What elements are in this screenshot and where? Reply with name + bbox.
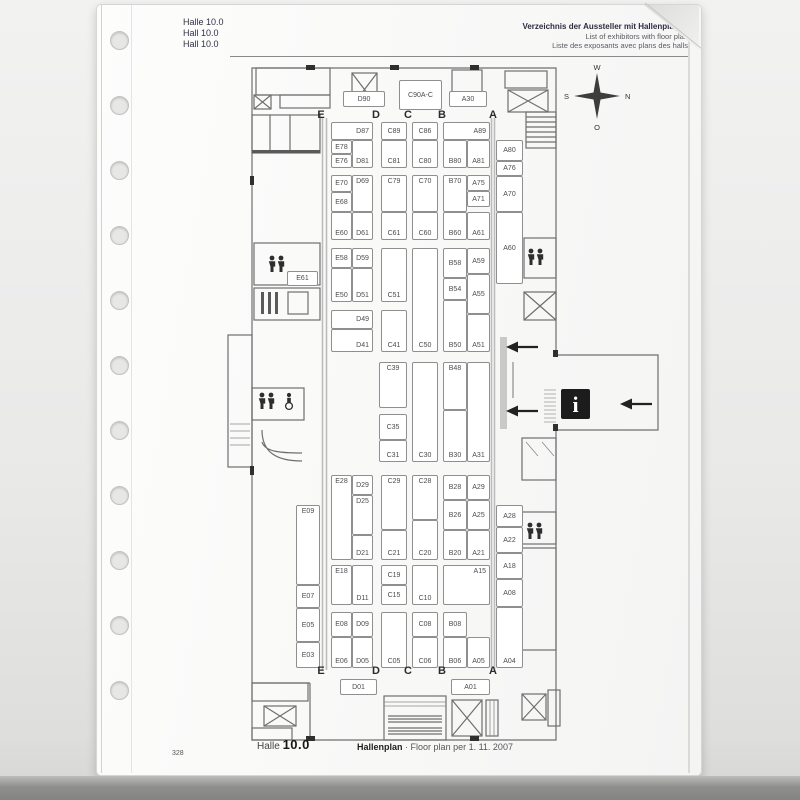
booth-E07: E07: [296, 585, 320, 608]
booth-B20: B20: [443, 530, 467, 560]
booth-C90A-C: C90A-C: [399, 80, 442, 110]
column-letter-C-top: C: [404, 109, 412, 121]
booth-D51: D51: [352, 268, 373, 302]
booth-C79: C79: [381, 175, 407, 212]
photographed-catalog-page: Halle 10.0 Hall 10.0 Hall 10.0 Verzeichn…: [0, 0, 800, 800]
booth-B48: B48: [443, 362, 467, 410]
footer-plan-caption: Hallenplan · Floor plan per 1. 11. 2007: [357, 742, 513, 752]
booth-C31: C31: [379, 440, 407, 462]
booth-C81: C81: [381, 140, 407, 168]
booth-E78: E78: [331, 140, 352, 154]
booth-C80: C80: [412, 140, 438, 168]
footer-hall-word: Halle: [257, 741, 280, 752]
booth-E06: E06: [331, 637, 352, 668]
booth-A29: A29: [467, 475, 490, 500]
column-letter-A-top: A: [489, 109, 497, 121]
booth-A59: A59: [467, 248, 490, 274]
booth-D25: D25: [352, 495, 373, 535]
booth-D90: D90: [343, 91, 385, 107]
booth-B50: B50: [443, 300, 467, 352]
booth-C89: C89: [381, 122, 407, 140]
booth-B26: B26: [443, 500, 467, 530]
booth-A81: A81: [467, 140, 490, 168]
booth-C35: C35: [379, 414, 407, 440]
booth-A61: A61: [467, 212, 490, 240]
booth-C19: C19: [381, 565, 407, 585]
booth-C51: C51: [381, 248, 407, 302]
booth-D41: D41: [331, 329, 373, 352]
booth-E76: E76: [331, 154, 352, 168]
booth-A80: A80: [496, 140, 523, 161]
booth-C10: C10: [412, 565, 438, 605]
booth-D01: D01: [340, 679, 377, 695]
booth-C60: C60: [412, 212, 438, 240]
booth-D11: D11: [352, 565, 373, 605]
booth-C15: C15: [381, 585, 407, 605]
booth-layer: D90C90A-CA30D87E78E76D81C89C81C86C80A89B…: [0, 0, 800, 800]
booth-C28: C28: [412, 475, 438, 520]
booth-B80: B80: [443, 140, 467, 168]
booth-E08: E08: [331, 612, 352, 637]
booth-E58: E58: [331, 248, 352, 268]
page-number: 328: [172, 750, 184, 757]
booth-D61: D61: [352, 212, 373, 240]
booth-D69: D69: [352, 175, 373, 212]
booth-B60: B60: [443, 212, 467, 240]
footer-hall-title: Halle 10.0: [257, 737, 310, 752]
booth-C50: C50: [412, 248, 438, 352]
booth-A55: A55: [467, 274, 490, 314]
booth-C41: C41: [381, 310, 407, 352]
booth-A25: A25: [467, 500, 490, 530]
booth-C20: C20: [412, 520, 438, 560]
booth-E61: E61: [287, 271, 318, 286]
table-edge: [0, 776, 800, 800]
booth-E60: E60: [331, 212, 352, 240]
booth-C05: C05: [381, 612, 407, 668]
booth-A15: A15: [443, 565, 490, 605]
booth-E09: E09: [296, 505, 320, 585]
footer-separator: ·: [405, 742, 408, 752]
column-letter-C-bottom: C: [404, 665, 412, 677]
booth-E05: E05: [296, 608, 320, 642]
booth-E50: E50: [331, 268, 352, 302]
booth-A31: A31: [467, 362, 490, 462]
booth-A18: A18: [496, 553, 523, 579]
booth-A28: A28: [496, 505, 523, 527]
booth-A21: A21: [467, 530, 490, 560]
booth-C06: C06: [412, 637, 438, 668]
booth-C30: C30: [412, 362, 438, 462]
booth-B30: B30: [443, 410, 467, 462]
column-letter-D-top: D: [372, 109, 380, 121]
column-letter-E-bottom: E: [317, 665, 324, 677]
booth-A22: A22: [496, 527, 523, 553]
booth-A08: A08: [496, 579, 523, 607]
booth-C86: C86: [412, 122, 438, 140]
booth-B58: B58: [443, 248, 467, 278]
booth-A89: A89: [443, 122, 490, 140]
booth-B28: B28: [443, 475, 467, 500]
booth-B06: B06: [443, 637, 467, 668]
footer-plan-title: Hallenplan: [357, 742, 403, 752]
booth-D59: D59: [352, 248, 373, 268]
booth-A75: A75: [467, 175, 490, 191]
booth-E68: E68: [331, 192, 352, 212]
booth-A71: A71: [467, 191, 490, 207]
booth-A01: A01: [451, 679, 490, 695]
booth-D81: D81: [352, 140, 373, 168]
booth-A05: A05: [467, 637, 490, 668]
booth-A30: A30: [449, 91, 487, 107]
column-letter-B-bottom: B: [438, 665, 446, 677]
booth-D21: D21: [352, 535, 373, 560]
booth-A60: A60: [496, 212, 523, 284]
booth-C08: C08: [412, 612, 438, 637]
booth-B08: B08: [443, 612, 467, 637]
footer-hall-number: 10.0: [283, 737, 310, 752]
booth-D29: D29: [352, 475, 373, 495]
column-letter-B-top: B: [438, 109, 446, 121]
booth-D05: D05: [352, 637, 373, 668]
booth-C39: C39: [379, 362, 407, 408]
booth-E70: E70: [331, 175, 352, 192]
booth-A76: A76: [496, 161, 523, 176]
booth-D87: D87: [331, 122, 373, 140]
booth-B54: B54: [443, 278, 467, 300]
booth-A51: A51: [467, 314, 490, 352]
booth-A70: A70: [496, 176, 523, 212]
column-letter-D-bottom: D: [372, 665, 380, 677]
booth-C70: C70: [412, 175, 438, 212]
booth-D49: D49: [331, 310, 373, 329]
booth-D09: D09: [352, 612, 373, 637]
footer-plan-subtitle: Floor plan per 1. 11. 2007: [411, 742, 513, 752]
column-letter-E-top: E: [317, 109, 324, 121]
booth-B70: B70: [443, 175, 467, 212]
booth-E28: E28: [331, 475, 352, 560]
column-letter-A-bottom: A: [489, 665, 497, 677]
booth-C61: C61: [381, 212, 407, 240]
booth-C29: C29: [381, 475, 407, 530]
booth-E18: E18: [331, 565, 352, 605]
booth-C21: C21: [381, 530, 407, 560]
booth-A04: A04: [496, 607, 523, 668]
